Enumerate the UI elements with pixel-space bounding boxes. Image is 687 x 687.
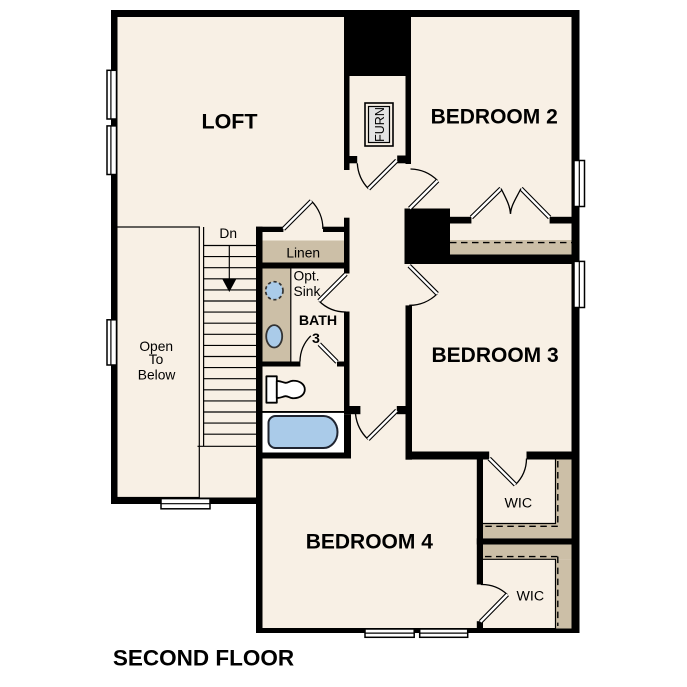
svg-text:WIC: WIC: [517, 588, 545, 604]
svg-text:To: To: [149, 352, 164, 367]
svg-text:Below: Below: [138, 367, 176, 382]
svg-text:BEDROOM 4: BEDROOM 4: [306, 531, 434, 554]
svg-text:3: 3: [312, 331, 320, 347]
svg-text:BATH: BATH: [299, 313, 337, 329]
svg-text:WIC: WIC: [505, 496, 533, 512]
svg-text:BEDROOM 2: BEDROOM 2: [431, 106, 558, 129]
svg-text:Linen: Linen: [286, 246, 320, 261]
svg-text:Opt.: Opt.: [294, 268, 320, 283]
svg-text:SECOND FLOOR: SECOND FLOOR: [113, 645, 294, 670]
svg-text:Dn: Dn: [219, 226, 237, 241]
svg-text:BEDROOM 3: BEDROOM 3: [432, 344, 559, 367]
svg-text:FURN: FURN: [373, 107, 387, 142]
svg-text:LOFT: LOFT: [201, 109, 257, 133]
svg-text:Sink: Sink: [294, 284, 321, 299]
